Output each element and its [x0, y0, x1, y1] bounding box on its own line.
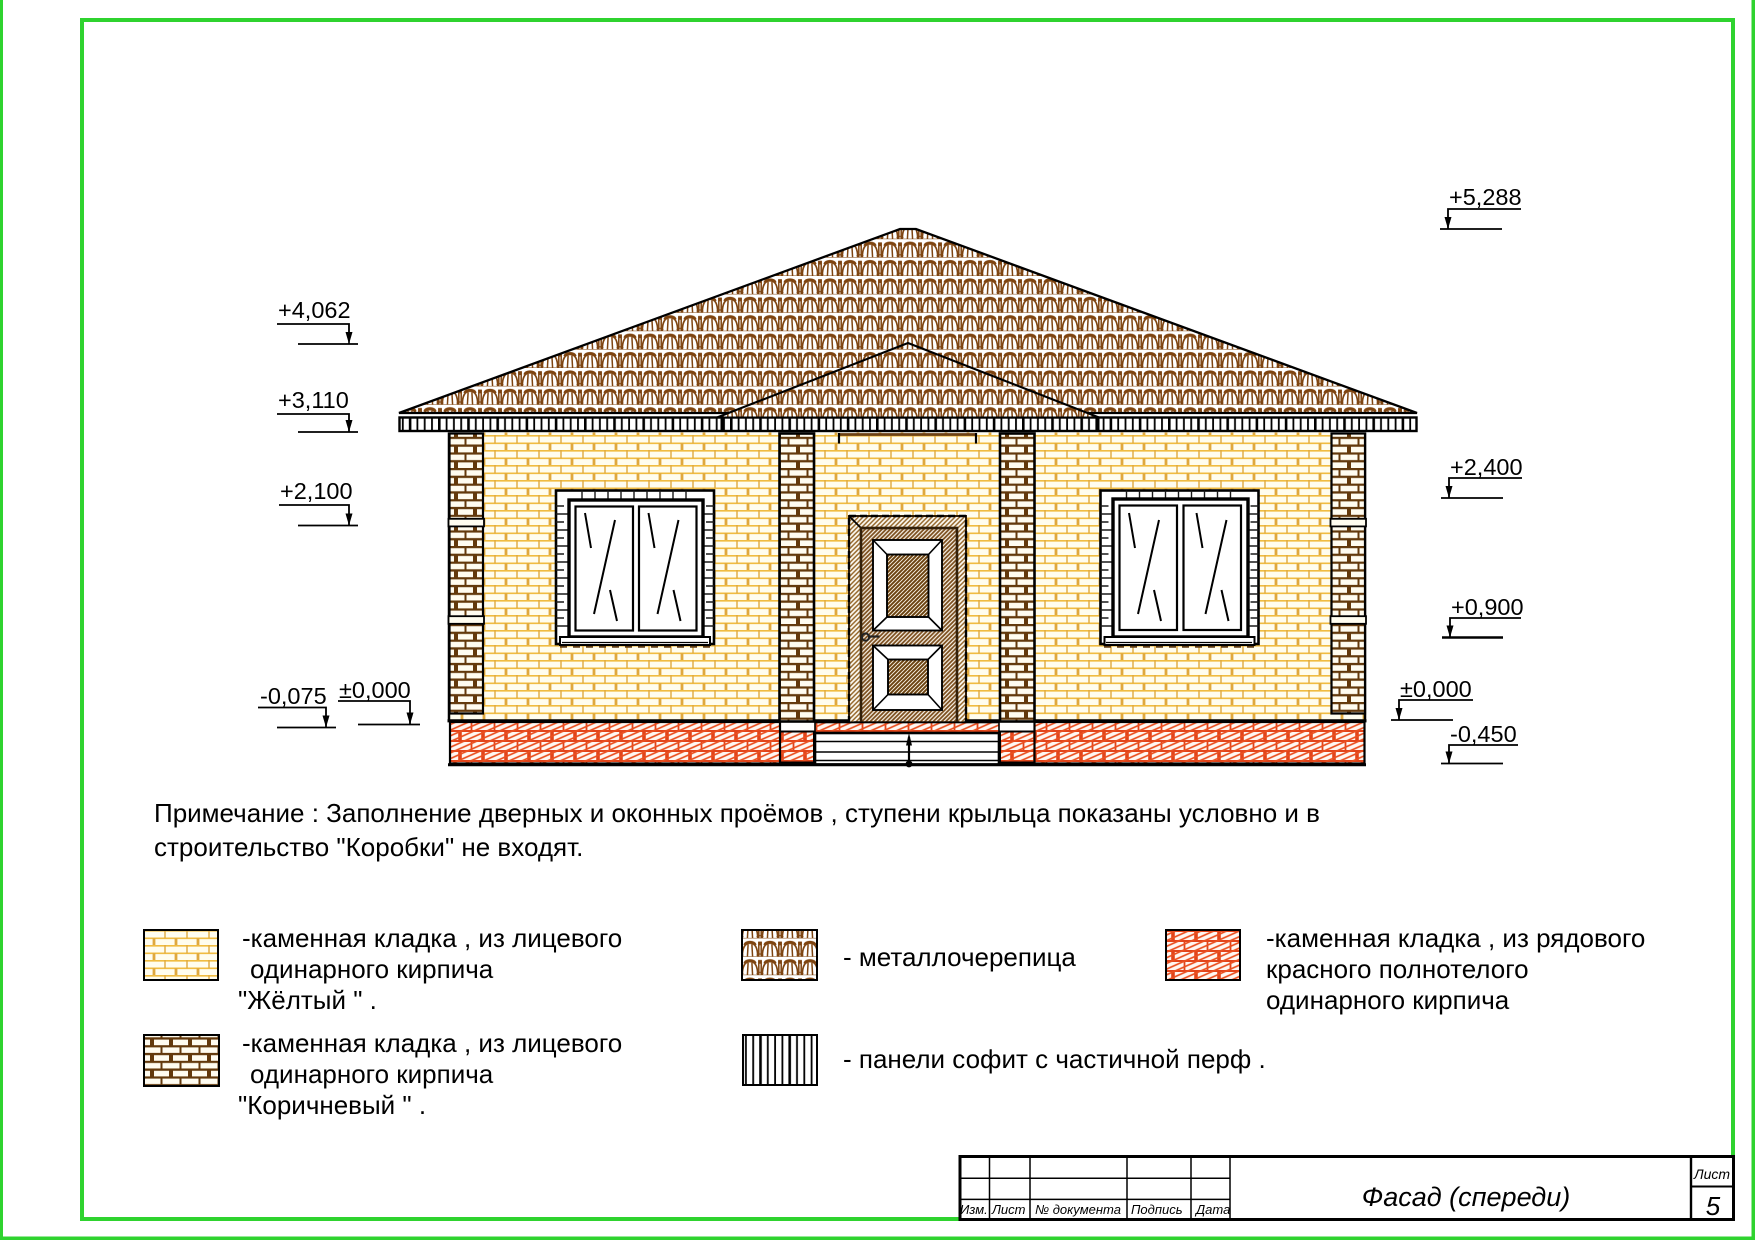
svg-text:строительство "Коробки" не вх: строительство "Коробки" не входят.: [154, 832, 583, 862]
svg-text:Подпись: Подпись: [1131, 1202, 1183, 1217]
svg-text:- металлочерепица: - металлочерепица: [843, 942, 1076, 972]
svg-text:"Коричневый " .: "Коричневый " .: [238, 1090, 426, 1120]
svg-text:"Жёлтый " .: "Жёлтый " .: [238, 985, 377, 1015]
svg-text:красного полнотелого: красного полнотелого: [1266, 954, 1529, 984]
svg-text:Дата: Дата: [1194, 1202, 1230, 1217]
svg-text:5: 5: [1706, 1191, 1721, 1221]
svg-text:+2,400: +2,400: [1450, 454, 1523, 480]
svg-text:+0,900: +0,900: [1451, 594, 1524, 620]
svg-text:Изм.: Изм.: [960, 1202, 988, 1217]
svg-text:-каменная кладка , из лицевого: -каменная кладка , из лицевого: [242, 923, 622, 953]
svg-text:Фасад (спереди): Фасад (спереди): [1362, 1182, 1570, 1212]
svg-text:№ документа: № документа: [1035, 1202, 1121, 1217]
svg-text:- панели софит с частичной пер: - панели софит с частичной перф .: [843, 1044, 1266, 1074]
svg-text:+5,288: +5,288: [1449, 184, 1522, 210]
svg-text:±0,000: ±0,000: [339, 677, 411, 703]
svg-text:одинарного кирпича: одинарного кирпича: [250, 1059, 494, 1089]
svg-text:+3,110: +3,110: [278, 387, 349, 413]
svg-text:одинарного кирпича: одинарного кирпича: [1266, 985, 1510, 1015]
svg-text:-0,450: -0,450: [1450, 721, 1517, 747]
svg-text:-0,075: -0,075: [260, 683, 327, 709]
svg-text:±0,000: ±0,000: [1400, 676, 1472, 702]
svg-text:Лист: Лист: [991, 1202, 1026, 1217]
svg-text:одинарного кирпича: одинарного кирпича: [250, 954, 494, 984]
svg-text:-каменная кладка , из лицевого: -каменная кладка , из лицевого: [242, 1028, 622, 1058]
svg-text:Примечание : Заполнение дверны: Примечание : Заполнение дверных и оконны…: [154, 798, 1320, 828]
svg-text:+2,100: +2,100: [280, 478, 353, 504]
svg-text:-каменная кладка , из рядового: -каменная кладка , из рядового: [1266, 923, 1645, 953]
svg-text:+4,062: +4,062: [278, 297, 351, 323]
svg-text:Лист: Лист: [1693, 1166, 1730, 1182]
